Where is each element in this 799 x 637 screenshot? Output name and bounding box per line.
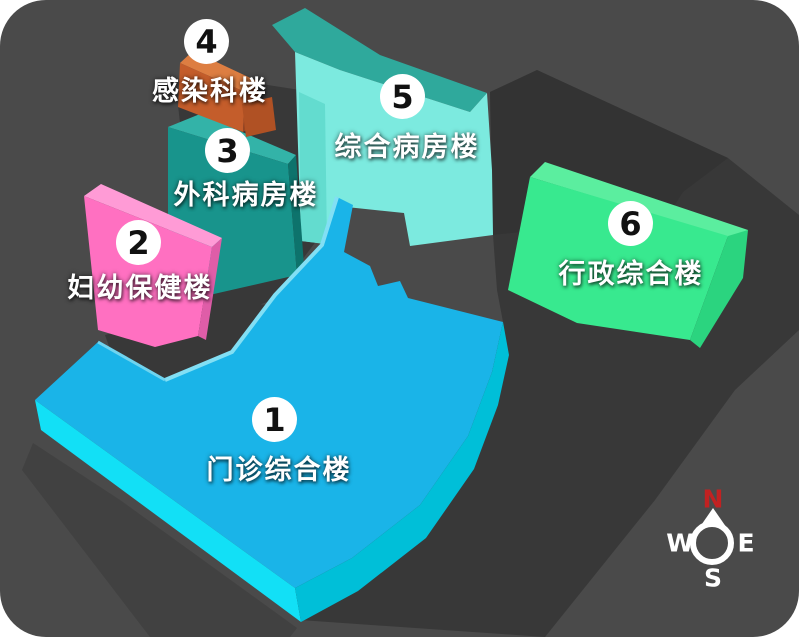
compass-rose: [693, 508, 731, 562]
compass-west-label: W: [666, 531, 694, 556]
compass-ring-icon: [693, 524, 731, 562]
compass-east-label: E: [737, 531, 754, 556]
building-4-badge: 4: [184, 19, 229, 64]
building-5-left-wing: [299, 92, 327, 244]
building-1-label: 门诊综合楼: [207, 448, 352, 487]
building-2-label: 妇幼保健楼: [68, 266, 213, 305]
building-5-badge: 5: [380, 74, 425, 119]
building-6-label: 行政综合楼: [559, 252, 704, 291]
building-3-label: 外科病房楼: [174, 173, 319, 212]
building-5-label: 综合病房楼: [335, 125, 480, 164]
building-1-badge: 1: [252, 397, 297, 442]
building-3-badge: 3: [205, 128, 250, 173]
compass-south-label: S: [704, 566, 722, 591]
building-6-badge: 6: [608, 201, 653, 246]
compass-north-label: N: [703, 487, 724, 512]
building-2-badge: 2: [116, 220, 161, 265]
campus-map: 1 2 3 4 5 6 门诊综合楼 妇幼保健楼 外科病房楼 感染科楼 综合病房楼…: [0, 0, 799, 637]
building-4-label: 感染科楼: [152, 69, 268, 108]
